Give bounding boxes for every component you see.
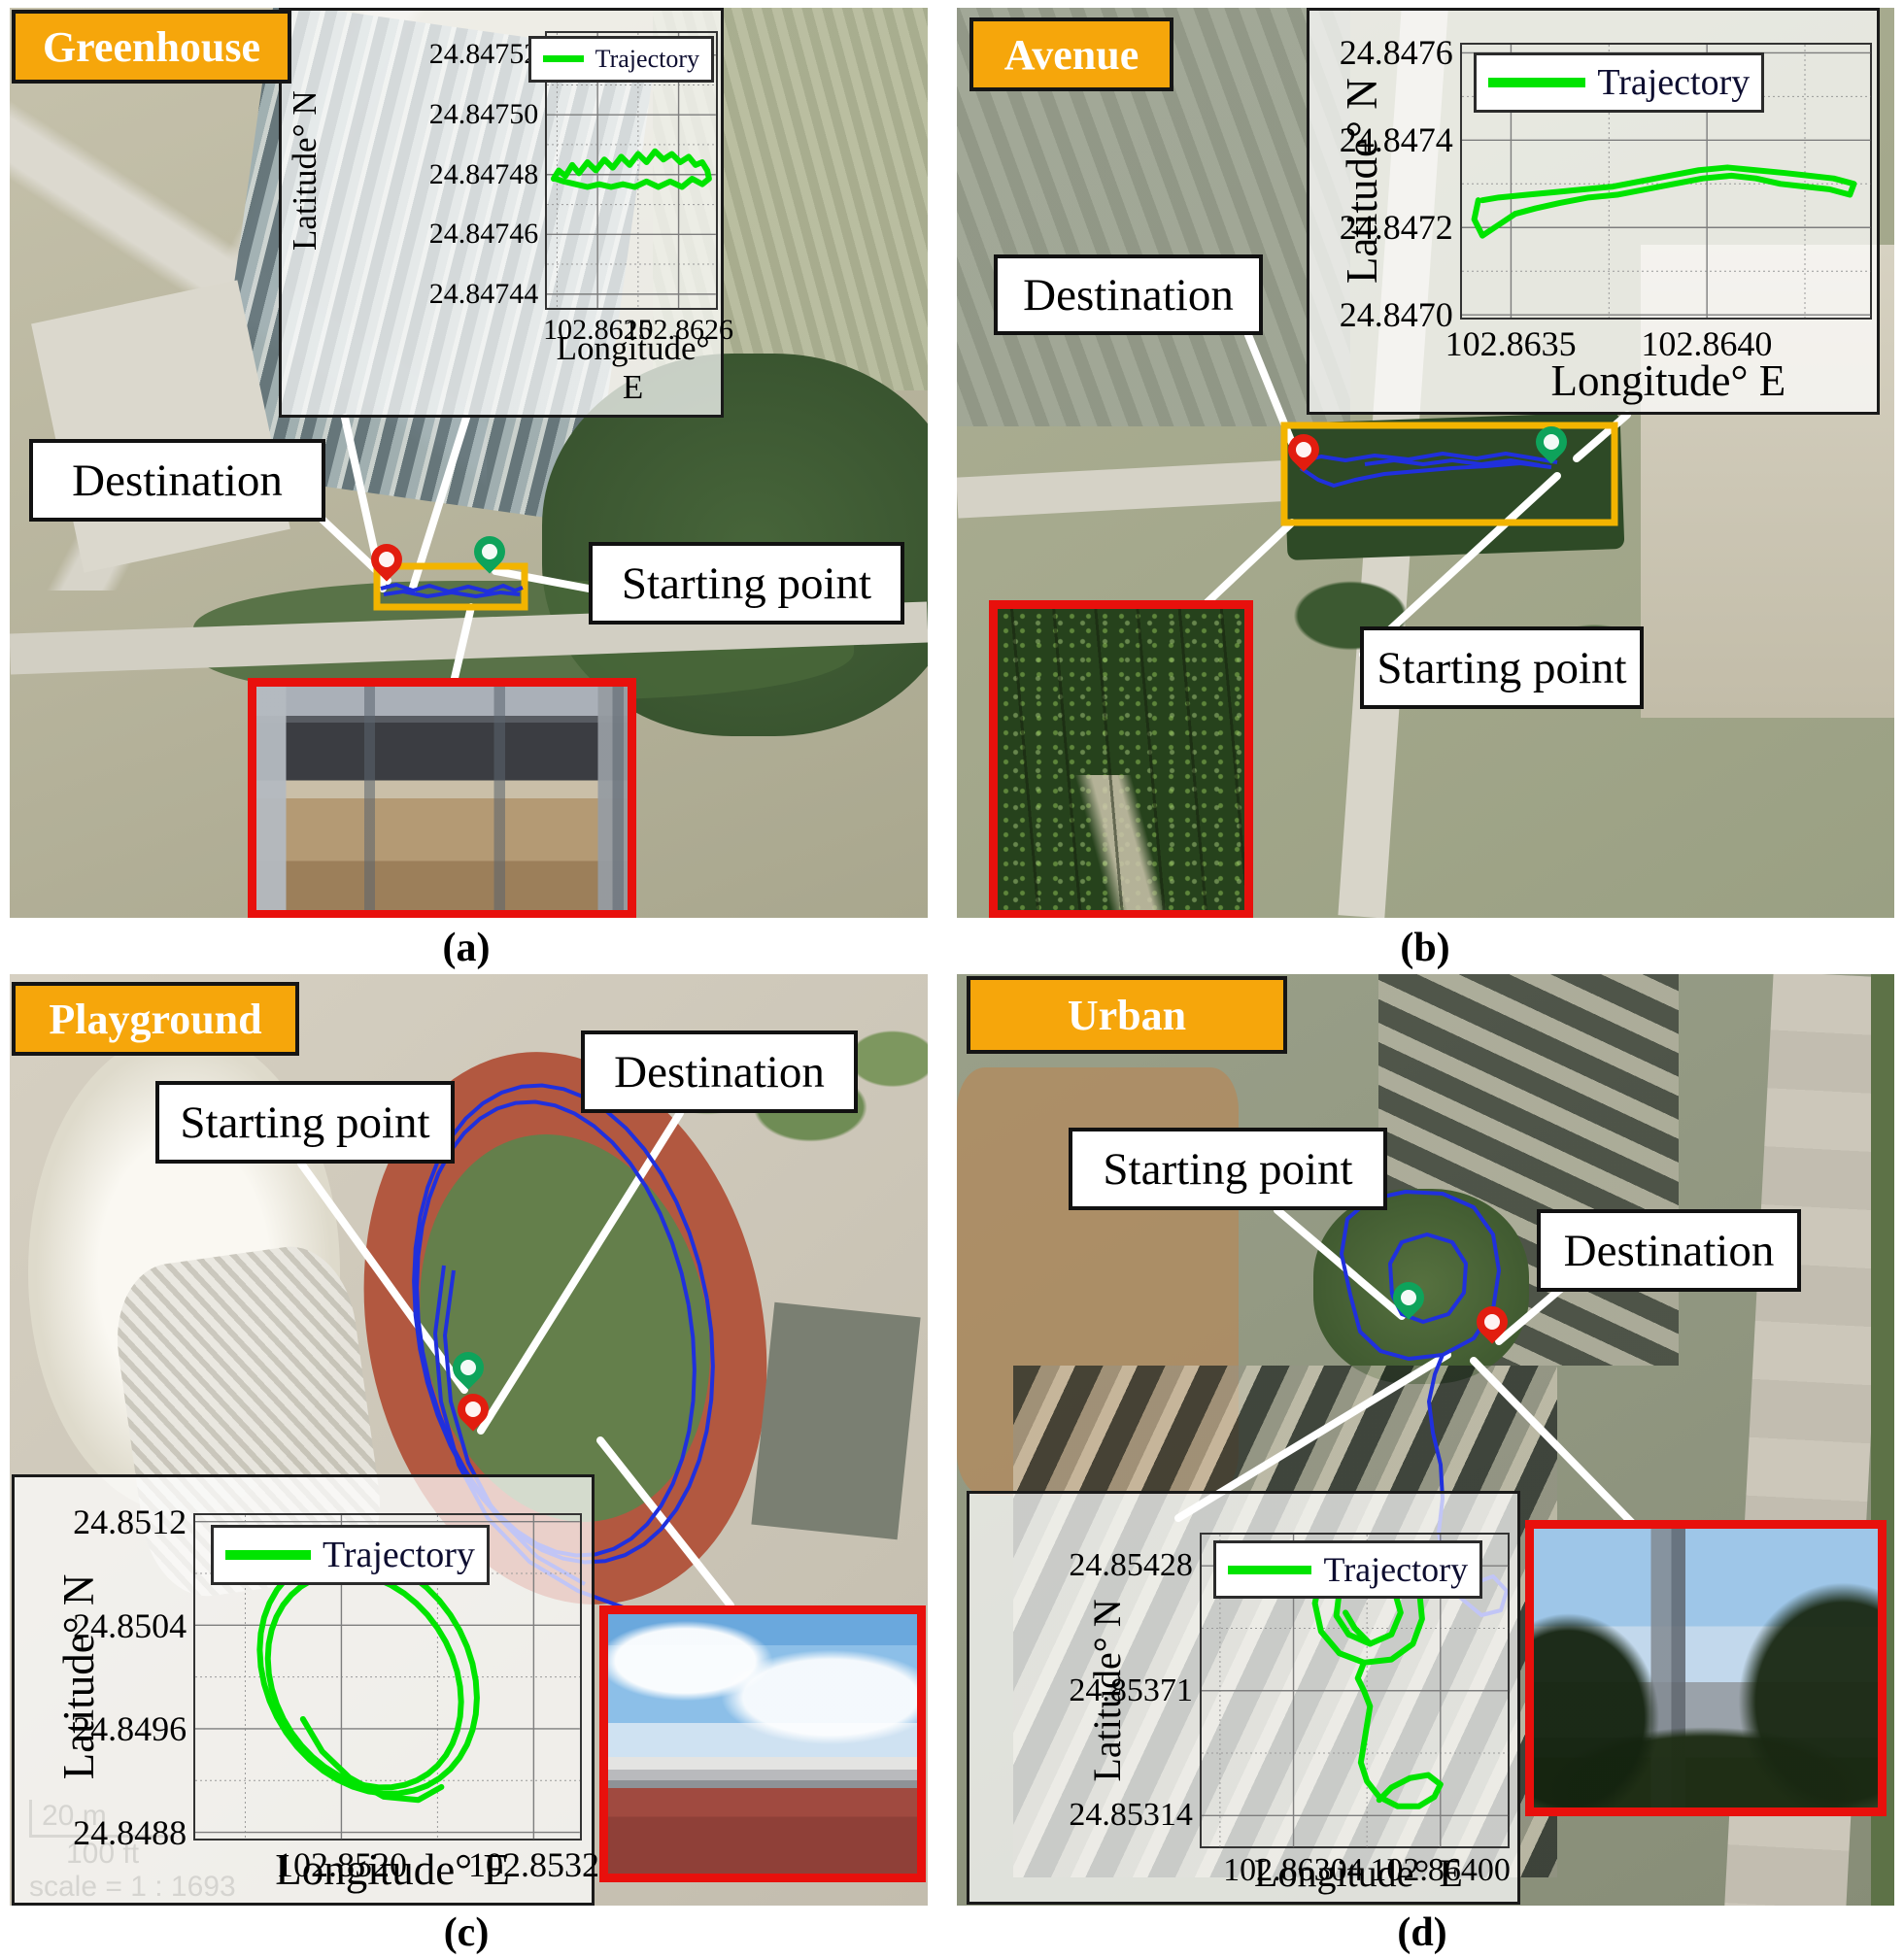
- chart-legend: Trajectory: [211, 1525, 490, 1585]
- y-tick-label: 24.84752: [429, 38, 539, 71]
- panel-b: Latitude° N Trajectory 24.847624.847424.…: [957, 8, 1894, 918]
- plot-area: Trajectory 24.8475224.8475024.8474824.84…: [545, 31, 718, 310]
- scene-tag: Avenue: [969, 17, 1173, 91]
- chart-legend: Trajectory: [528, 36, 714, 83]
- subfigure-caption-b: (b): [1400, 925, 1449, 971]
- figure: Latitude° N Trajectory 24.8475224.847502…: [0, 0, 1904, 1959]
- plot-area: Trajectory 24.847624.847424.847224.84701…: [1460, 43, 1872, 320]
- trajectory-line-icon: [1228, 1566, 1311, 1574]
- starting-point-label: Starting point: [589, 542, 904, 625]
- chart-d: Latitude° N Trajectory 24.8542824.853712…: [967, 1491, 1520, 1905]
- y-axis-label: Latitude° N: [53, 1513, 104, 1841]
- y-tick-label: 24.84746: [429, 218, 539, 251]
- chart-a: Latitude° N Trajectory 24.8475224.847502…: [279, 8, 724, 418]
- x-axis-label: Longitude° E: [193, 1844, 592, 1895]
- y-axis-label: Latitude° N: [286, 31, 324, 310]
- ground-photo-greenhouse: [248, 678, 636, 918]
- y-tick-label: 24.84744: [429, 278, 539, 311]
- chart-c: Latitude° N Trajectory 24.851224.850424.…: [12, 1474, 595, 1906]
- subfigure-caption-c: (c): [444, 1909, 490, 1956]
- scene-tag: Urban: [967, 976, 1287, 1054]
- y-tick-label: 24.85314: [1069, 1797, 1193, 1834]
- destination-label: Destination: [581, 1030, 858, 1113]
- x-axis-label: Longitude° E: [1460, 355, 1877, 406]
- y-tick-label: 24.8504: [73, 1605, 187, 1646]
- plot-area: Trajectory 24.851224.850424.849624.84881…: [193, 1513, 582, 1841]
- y-tick-label: 24.8474: [1340, 119, 1453, 160]
- starting-point-label: Starting point: [1069, 1128, 1387, 1210]
- y-tick-label: 24.8512: [73, 1502, 187, 1542]
- chart-legend: Trajectory: [1474, 52, 1764, 113]
- y-tick-label: 24.8476: [1340, 32, 1453, 73]
- y-tick-label: 24.8488: [73, 1812, 187, 1853]
- trajectory-line-icon: [543, 55, 584, 62]
- y-tick-label: 24.85428: [1069, 1547, 1193, 1584]
- panel-a: Latitude° N Trajectory 24.8475224.847502…: [10, 8, 928, 918]
- ground-photo-avenue: [989, 600, 1253, 918]
- y-tick-label: 24.8470: [1340, 294, 1453, 335]
- y-tick-label: 24.85371: [1069, 1672, 1193, 1709]
- ground-photo-urban: [1525, 1520, 1887, 1816]
- scene-tag: Playground: [12, 982, 299, 1056]
- y-tick-label: 24.8496: [73, 1708, 187, 1749]
- chart-b: Latitude° N Trajectory 24.847624.847424.…: [1307, 8, 1880, 415]
- y-axis-label: Latitude° N: [1337, 43, 1387, 320]
- subfigure-caption-a: (a): [443, 925, 491, 971]
- ground-photo-playground: [599, 1605, 926, 1882]
- trajectory-line-icon: [225, 1550, 311, 1560]
- y-tick-label: 24.84750: [429, 98, 539, 131]
- plot-area: Trajectory 24.8542824.8537124.85314102.8…: [1200, 1533, 1510, 1849]
- x-axis-label: Longitude° E: [545, 329, 721, 407]
- y-tick-label: 24.84748: [429, 158, 539, 191]
- scene-tag: Greenhouse: [12, 10, 291, 84]
- starting-point-label: Starting point: [155, 1081, 455, 1164]
- starting-point-label: Starting point: [1360, 626, 1644, 709]
- panel-c: 20 m 100 ft scale = 1 : 1693 Latitude° N…: [10, 974, 928, 1906]
- x-axis-label: Longitude° E: [1200, 1850, 1517, 1896]
- subfigure-caption-d: (d): [1397, 1909, 1446, 1956]
- destination-label: Destination: [1537, 1209, 1801, 1292]
- panel-d: Latitude° N Trajectory 24.8542824.853712…: [957, 974, 1894, 1906]
- destination-label: Destination: [994, 254, 1263, 335]
- destination-label: Destination: [29, 439, 325, 522]
- trajectory-line-icon: [1488, 78, 1585, 87]
- chart-legend: Trajectory: [1213, 1540, 1482, 1599]
- y-tick-label: 24.8472: [1340, 207, 1453, 248]
